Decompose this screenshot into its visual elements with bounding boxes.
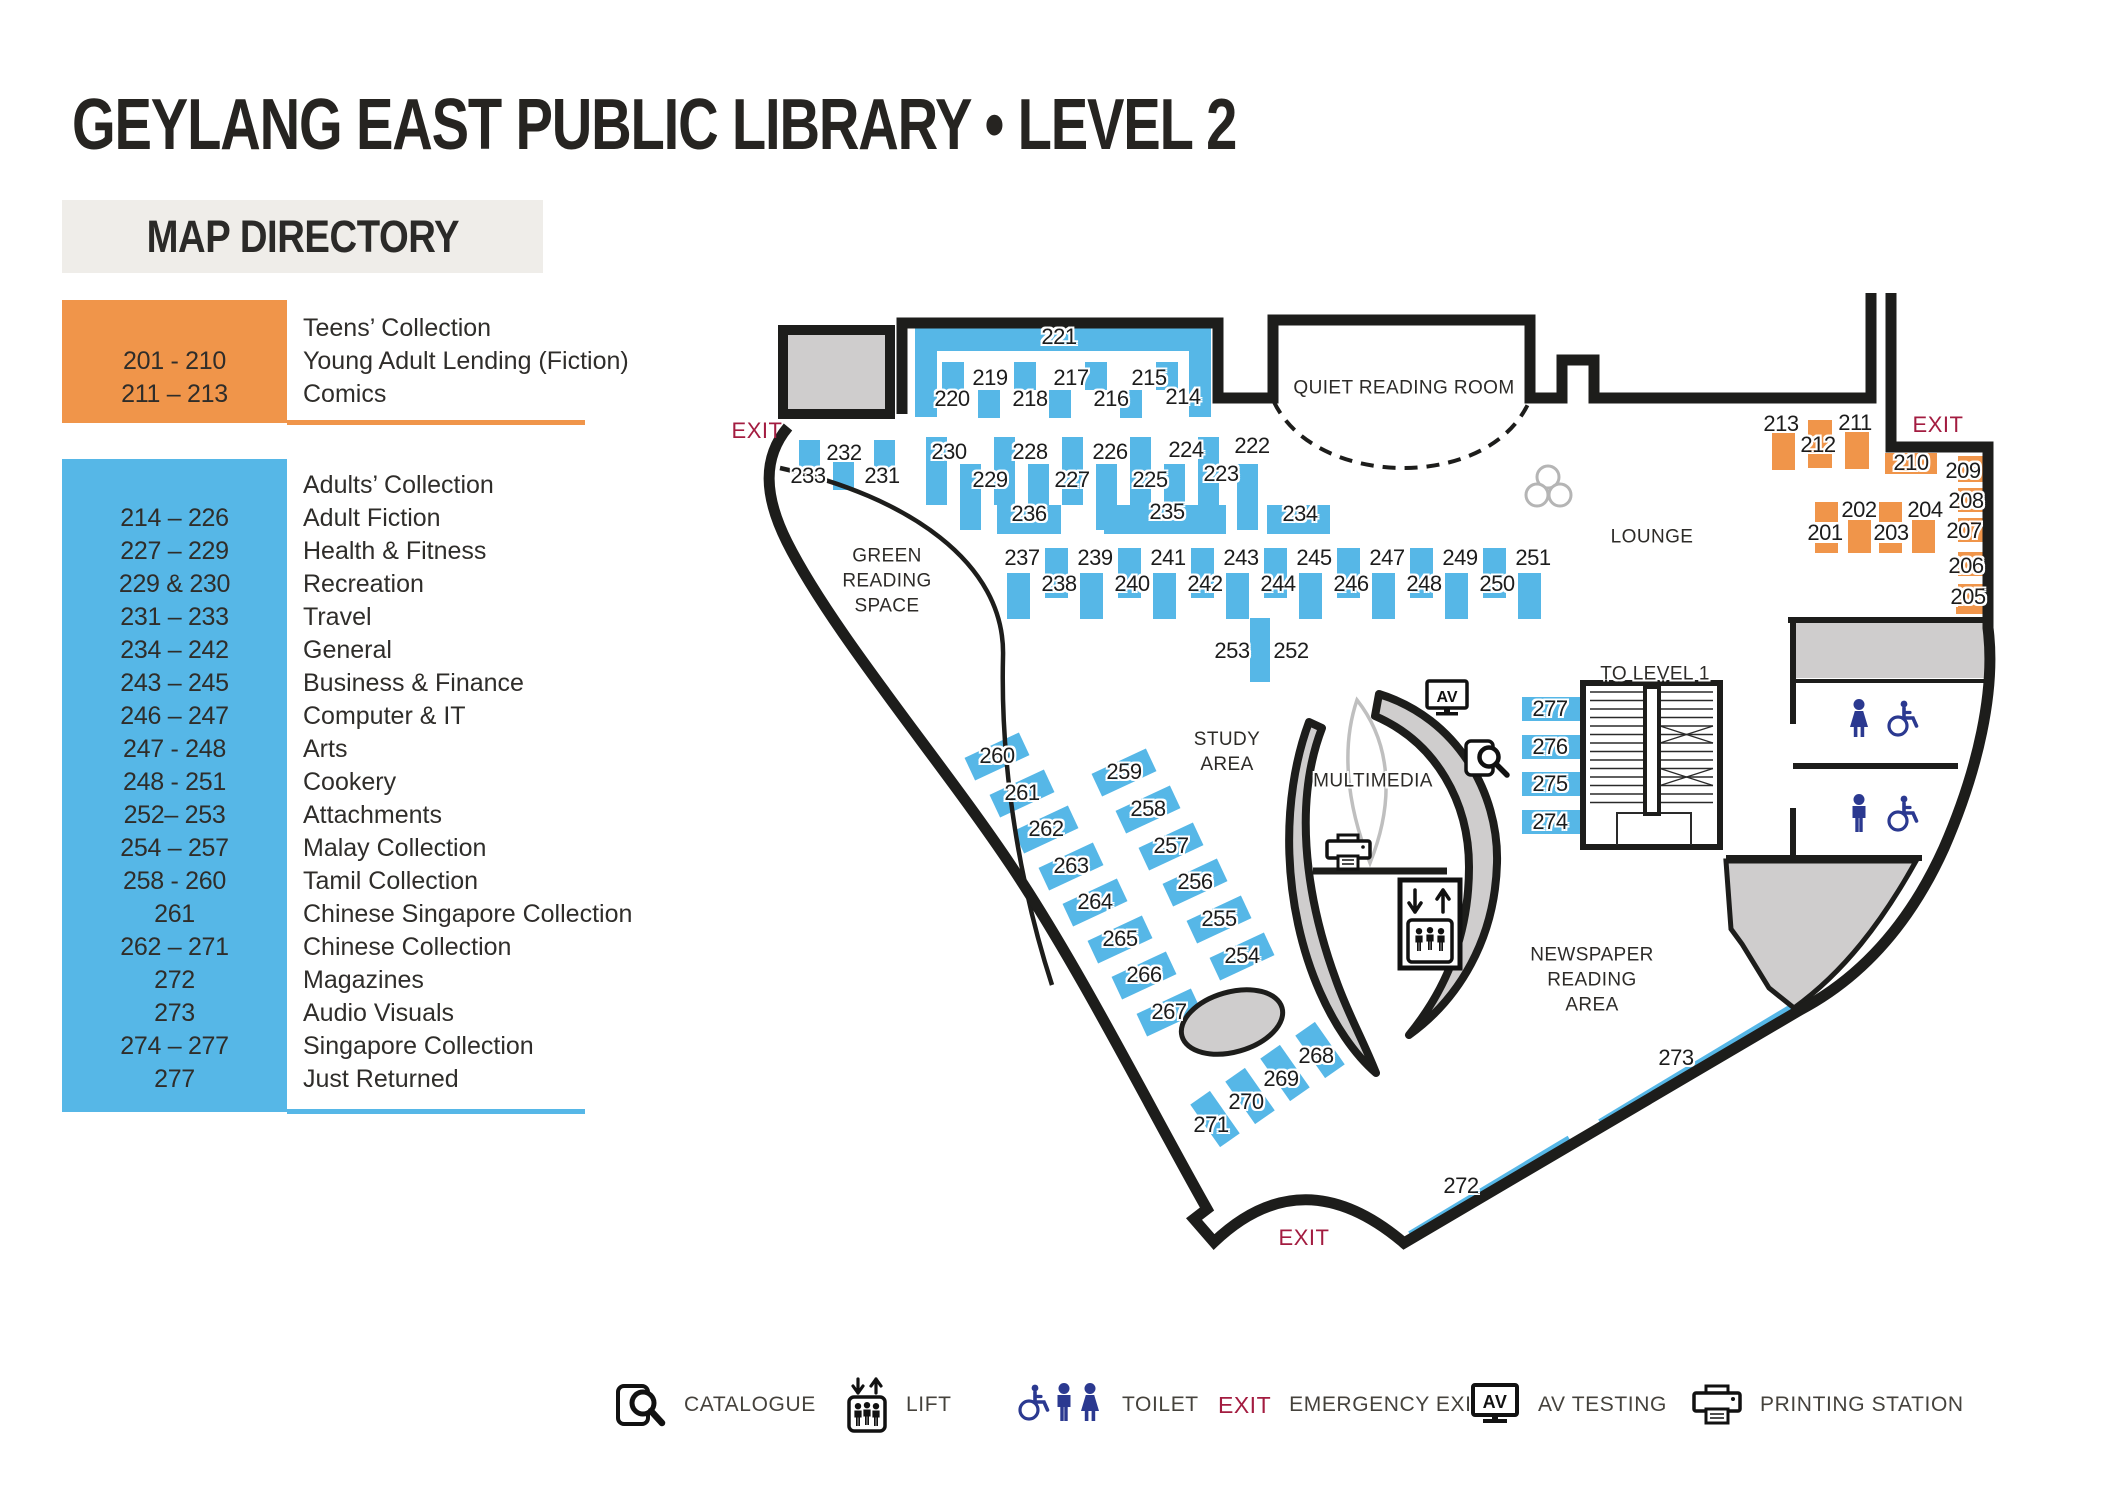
shelf-number: 220 bbox=[934, 386, 969, 412]
lounge-seats-icon bbox=[1526, 466, 1571, 506]
shelf-number: 251 bbox=[1515, 545, 1550, 571]
shelf-bar bbox=[1153, 573, 1176, 619]
shelf-number: 276 bbox=[1532, 734, 1567, 760]
shelf-number: 258 bbox=[1130, 796, 1165, 822]
shelf-number: 259 bbox=[1106, 759, 1141, 785]
directory-row: 229 & 230 Recreation bbox=[62, 568, 287, 601]
directory-row: 254 – 257 Malay Collection bbox=[62, 832, 287, 865]
shelf-number: 216 bbox=[1093, 386, 1128, 412]
shelf-bar bbox=[1772, 433, 1795, 470]
legend-printing-station: PRINTING STATION bbox=[1692, 1380, 1964, 1430]
directory-row: 247 - 248 Arts bbox=[62, 733, 287, 766]
shelf-bar bbox=[1237, 464, 1258, 530]
catalogue-icon bbox=[1466, 741, 1507, 775]
exit-label: EXIT bbox=[1913, 412, 1964, 438]
legend-printing-label: PRINTING STATION bbox=[1760, 1393, 1964, 1417]
shelf-number: 224 bbox=[1168, 437, 1203, 463]
directory-row: 231 – 233 Travel bbox=[62, 601, 287, 634]
legend-catalogue-label: CATALOGUE bbox=[684, 1393, 816, 1417]
directory-shelf-range: 274 – 277 bbox=[62, 1032, 287, 1061]
legend-toilet: TOILET bbox=[1012, 1380, 1199, 1430]
lift-icon bbox=[1400, 880, 1460, 968]
av-testing-icon: AV bbox=[1470, 1382, 1520, 1428]
shelf-number: 269 bbox=[1263, 1066, 1298, 1092]
teens-section-rule bbox=[287, 420, 585, 425]
stair-rail bbox=[1645, 687, 1659, 814]
directory-row: 273 Audio Visuals bbox=[62, 997, 287, 1030]
shelf-number: 227 bbox=[1054, 467, 1089, 493]
directory-category: Comics bbox=[303, 380, 386, 409]
shelf-number: 236 bbox=[1011, 501, 1046, 527]
shelf-bar bbox=[1080, 573, 1103, 619]
annex-room bbox=[783, 330, 890, 414]
shelf-number: 252 bbox=[1273, 638, 1308, 664]
legend-toilet-label: TOILET bbox=[1122, 1393, 1199, 1417]
shelf-number: 277 bbox=[1532, 696, 1567, 722]
directory-shelf-range: 254 – 257 bbox=[62, 834, 287, 863]
directory-category: Adult Fiction bbox=[303, 504, 441, 533]
directory-category: Attachments bbox=[303, 801, 442, 830]
room-green-reading-space: GREEN READING SPACE bbox=[842, 543, 931, 618]
exit-label: EXIT bbox=[732, 418, 783, 444]
directory-category: Tamil Collection bbox=[303, 867, 478, 896]
shelf-number: 218 bbox=[1012, 386, 1047, 412]
directory-shelf-range: 258 - 260 bbox=[62, 867, 287, 896]
shelf-number: 231 bbox=[864, 463, 899, 489]
directory-row: Teens’ Collection bbox=[62, 312, 287, 345]
directory-shelf-range: 234 – 242 bbox=[62, 636, 287, 665]
shelf-bar bbox=[1815, 502, 1838, 522]
room-newspaper-reading: NEWSPAPER READING AREA bbox=[1530, 942, 1654, 1017]
lift-icon bbox=[846, 1377, 888, 1433]
quiet-room-boundary bbox=[1274, 402, 1529, 468]
shelf-bar bbox=[1848, 520, 1871, 553]
svg-text:AV: AV bbox=[1436, 689, 1457, 706]
directory-category: Arts bbox=[303, 735, 347, 764]
directory-row: 201 - 210 Young Adult Lending (Fiction) bbox=[62, 345, 287, 378]
shelf-bar bbox=[833, 462, 854, 490]
shelf-number: 267 bbox=[1151, 999, 1186, 1025]
directory-shelf-range: 243 – 245 bbox=[62, 669, 287, 698]
shelf-number: 228 bbox=[1012, 439, 1047, 465]
room-quiet-reading: QUIET READING ROOM bbox=[1293, 375, 1514, 400]
wheelchair-icon bbox=[1889, 796, 1917, 830]
shelf-number: 238 bbox=[1041, 571, 1076, 597]
directory-row: 261 Chinese Singapore Collection bbox=[62, 898, 287, 931]
shelf-number: 225 bbox=[1132, 467, 1167, 493]
shelf-number: 263 bbox=[1053, 853, 1088, 879]
directory-row: 258 - 260 Tamil Collection bbox=[62, 865, 287, 898]
directory-category: Singapore Collection bbox=[303, 1032, 534, 1061]
shelf-number: 217 bbox=[1053, 365, 1088, 391]
directory-row: 274 – 277 Singapore Collection bbox=[62, 1030, 287, 1063]
directory-row: 248 - 251 Cookery bbox=[62, 766, 287, 799]
shelf-number: 212 bbox=[1800, 432, 1835, 458]
shelf-number: 234 bbox=[1282, 501, 1317, 527]
shelf-number: 268 bbox=[1298, 1043, 1333, 1069]
directory-category: Travel bbox=[303, 603, 372, 632]
shelf-number: 203 bbox=[1873, 520, 1908, 546]
directory-category: Just Returned bbox=[303, 1065, 459, 1094]
room-multimedia: MULTIMEDIA bbox=[1313, 768, 1433, 793]
directory-shelf-range: 227 – 229 bbox=[62, 537, 287, 566]
shelf-number: 262 bbox=[1028, 816, 1063, 842]
directory-category: Recreation bbox=[303, 570, 424, 599]
shelf-number: 213 bbox=[1763, 411, 1798, 437]
room-lounge: LOUNGE bbox=[1611, 524, 1694, 549]
shelf-number: 232 bbox=[826, 440, 861, 466]
multimedia-structure bbox=[1289, 694, 1497, 1073]
shelf-number: 242 bbox=[1187, 571, 1222, 597]
shelf-bar bbox=[1049, 390, 1071, 418]
shelf-number: 253 bbox=[1214, 638, 1249, 664]
shelf-number: 254 bbox=[1224, 943, 1259, 969]
directory-shelf-range: 248 - 251 bbox=[62, 768, 287, 797]
shelf-bar bbox=[1372, 573, 1395, 619]
shelf-number: 214 bbox=[1165, 384, 1200, 410]
directory-category: Adults’ Collection bbox=[303, 471, 494, 500]
shelf-number: 271 bbox=[1193, 1112, 1228, 1138]
directory-shelf-range: 246 – 247 bbox=[62, 702, 287, 731]
directory-row: 272 Magazines bbox=[62, 964, 287, 997]
directory-category: Chinese Singapore Collection bbox=[303, 900, 632, 929]
toilet-walls bbox=[1726, 620, 1990, 858]
shelf-bar bbox=[1226, 573, 1249, 619]
legend-emergency-label: EMERGENCY EXIT bbox=[1289, 1393, 1485, 1417]
stairs bbox=[1583, 683, 1720, 847]
shelf-number: 221 bbox=[1041, 324, 1076, 350]
shelf-number: 201 bbox=[1807, 520, 1842, 546]
directory-shelf-range: 273 bbox=[62, 999, 287, 1028]
shelf-number: 246 bbox=[1333, 571, 1368, 597]
shelf-bar bbox=[978, 390, 1000, 418]
shelf-number: 230 bbox=[931, 439, 966, 465]
shelf-number: 261 bbox=[1004, 780, 1039, 806]
legend-av-testing: AV AV TESTING bbox=[1470, 1380, 1667, 1430]
directory-row: 214 – 226 Adult Fiction bbox=[62, 502, 287, 535]
directory-category: Teens’ Collection bbox=[303, 314, 491, 343]
legend-emergency-exit: EXIT EMERGENCY EXIT bbox=[1218, 1380, 1485, 1430]
shelf-number: 257 bbox=[1153, 833, 1188, 859]
shelf-number: 226 bbox=[1092, 439, 1127, 465]
shelf-number: 243 bbox=[1223, 545, 1258, 571]
directory-category: Young Adult Lending (Fiction) bbox=[303, 347, 629, 376]
directory-shelf-range: 277 bbox=[62, 1065, 287, 1094]
stairs-to-level-1-label: TO LEVEL 1 bbox=[1600, 661, 1710, 686]
printer-icon bbox=[1327, 835, 1370, 869]
shelf-number: 222 bbox=[1234, 433, 1269, 459]
directory-row: Adults’ Collection bbox=[62, 469, 287, 502]
toilet-icons bbox=[1012, 1379, 1104, 1431]
shelf-number: 250 bbox=[1479, 571, 1514, 597]
exit-label: EXIT bbox=[1279, 1225, 1330, 1251]
directory-category: Chinese Collection bbox=[303, 933, 511, 962]
directory-row: 227 – 229 Health & Fitness bbox=[62, 535, 287, 568]
directory-category: Magazines bbox=[303, 966, 424, 995]
shelf-number: 255 bbox=[1201, 906, 1236, 932]
shelf-number: 249 bbox=[1442, 545, 1477, 571]
shelf-number: 270 bbox=[1228, 1089, 1263, 1115]
directory-category: Malay Collection bbox=[303, 834, 486, 863]
directory-row: 246 – 247 Computer & IT bbox=[62, 700, 287, 733]
shelf-number: 229 bbox=[972, 467, 1007, 493]
shelf-number: 272 bbox=[1443, 1173, 1478, 1199]
directory-shelf-range: 272 bbox=[62, 966, 287, 995]
directory-shelf-range: 262 – 271 bbox=[62, 933, 287, 962]
shelf-number: 210 bbox=[1893, 450, 1928, 476]
shelf-number: 260 bbox=[979, 743, 1014, 769]
shelf-number: 209 bbox=[1945, 458, 1980, 484]
directory-shelf-range: 247 - 248 bbox=[62, 735, 287, 764]
directory-row: 252– 253 Attachments bbox=[62, 799, 287, 832]
shelf-bar bbox=[1518, 573, 1541, 619]
directory-shelf-range: 211 – 213 bbox=[62, 380, 287, 409]
directory-shelf-range: 252– 253 bbox=[62, 801, 287, 830]
shelf-bar bbox=[1007, 573, 1030, 619]
legend-lift-label: LIFT bbox=[906, 1393, 952, 1417]
printer-icon bbox=[1692, 1384, 1742, 1426]
shelf-bar bbox=[1879, 502, 1902, 522]
directory-adults-section: Adults’ Collection 214 – 226 Adult Ficti… bbox=[62, 459, 287, 1112]
shelf-number: 275 bbox=[1532, 771, 1567, 797]
shelf-number: 240 bbox=[1114, 571, 1149, 597]
legend-lift: LIFT bbox=[846, 1380, 952, 1430]
adults-section-rule bbox=[287, 1109, 585, 1114]
female-icon bbox=[1850, 699, 1868, 737]
shelf-bar bbox=[1445, 573, 1468, 619]
shelf-number: 223 bbox=[1203, 461, 1238, 487]
service-block-lower bbox=[1726, 861, 1916, 1008]
shelf-number: 202 bbox=[1841, 497, 1876, 523]
map-directory-header: MAP DIRECTORY bbox=[62, 200, 543, 273]
shelf-number: 244 bbox=[1260, 571, 1295, 597]
legend-exit-word: EXIT bbox=[1218, 1392, 1271, 1419]
shelf-number: 208 bbox=[1948, 488, 1983, 514]
directory-shelf-range: 261 bbox=[62, 900, 287, 929]
shelf-number: 206 bbox=[1948, 553, 1983, 579]
shelf-bar bbox=[1408, 1136, 1571, 1238]
shelf-number: 247 bbox=[1369, 545, 1404, 571]
shelf-number: 241 bbox=[1150, 545, 1185, 571]
shelf-number: 266 bbox=[1126, 962, 1161, 988]
shelf-bar bbox=[1250, 618, 1270, 682]
shelf-number: 264 bbox=[1077, 889, 1112, 915]
catalogue-icon bbox=[614, 1380, 666, 1430]
map-directory-title: MAP DIRECTORY bbox=[146, 211, 459, 263]
shelf-number: 219 bbox=[972, 365, 1007, 391]
directory-shelf-range: 201 - 210 bbox=[62, 347, 287, 376]
shelf-bar bbox=[1598, 1003, 1795, 1125]
directory-category: General bbox=[303, 636, 392, 665]
legend-catalogue: CATALOGUE bbox=[614, 1380, 816, 1430]
shelf-number: 215 bbox=[1131, 365, 1166, 391]
directory-category: Audio Visuals bbox=[303, 999, 454, 1028]
page-title: GEYLANG EAST PUBLIC LIBRARY • LEVEL 2 bbox=[72, 84, 1236, 166]
av-testing-icon: AV bbox=[1427, 681, 1467, 716]
male-icon bbox=[1853, 794, 1866, 832]
shelf-number: 245 bbox=[1296, 545, 1331, 571]
service-block bbox=[1793, 623, 1986, 678]
shelf-number: 273 bbox=[1658, 1045, 1693, 1071]
shelf-number: 274 bbox=[1532, 809, 1567, 835]
legend-av-label: AV TESTING bbox=[1538, 1393, 1667, 1417]
directory-category: Cookery bbox=[303, 768, 396, 797]
shelf-number: 239 bbox=[1077, 545, 1112, 571]
shelf-number: 235 bbox=[1149, 499, 1184, 525]
directory-category: Computer & IT bbox=[303, 702, 466, 731]
directory-shelf-range: 229 & 230 bbox=[62, 570, 287, 599]
shelf-number: 204 bbox=[1907, 497, 1942, 523]
wheelchair-icon bbox=[1889, 701, 1917, 735]
shelf-number: 256 bbox=[1177, 869, 1212, 895]
directory-row: 211 – 213 Comics bbox=[62, 378, 287, 411]
shelf-number: 207 bbox=[1946, 518, 1981, 544]
shelf-number: 248 bbox=[1406, 571, 1441, 597]
shelf-number: 233 bbox=[790, 463, 825, 489]
shelf-number: 265 bbox=[1102, 926, 1137, 952]
directory-row: 277 Just Returned bbox=[62, 1063, 287, 1096]
directory-row: 234 – 242 General bbox=[62, 634, 287, 667]
shelf-number: 237 bbox=[1004, 545, 1039, 571]
directory-row: 243 – 245 Business & Finance bbox=[62, 667, 287, 700]
shelf-bar bbox=[1299, 573, 1322, 619]
directory-row: 262 – 271 Chinese Collection bbox=[62, 931, 287, 964]
room-study-area: STUDY AREA bbox=[1194, 727, 1260, 777]
shelf-bar bbox=[1845, 431, 1869, 469]
shelf-number: 205 bbox=[1950, 584, 1985, 610]
shelf-bar bbox=[1912, 520, 1935, 553]
directory-shelf-range: 214 – 226 bbox=[62, 504, 287, 533]
directory-shelf-range: 231 – 233 bbox=[62, 603, 287, 632]
svg-text:AV: AV bbox=[1483, 1392, 1508, 1412]
shelf-number: 211 bbox=[1838, 410, 1872, 436]
directory-category: Health & Fitness bbox=[303, 537, 486, 566]
directory-teens-section: Teens’ Collection 201 - 210 Young Adult … bbox=[62, 300, 287, 423]
directory-category: Business & Finance bbox=[303, 669, 524, 698]
